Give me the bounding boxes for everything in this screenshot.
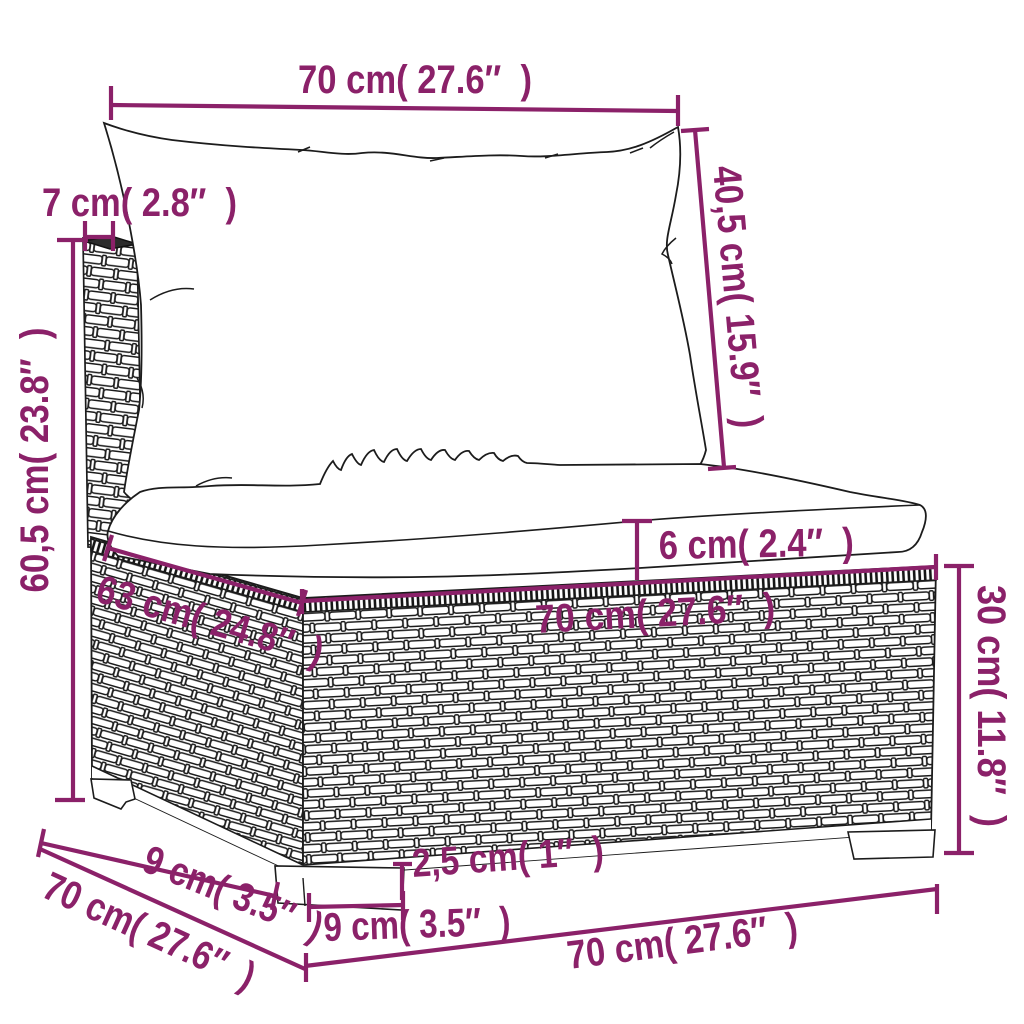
svg-text:9 cm( 3.5″ ): 9 cm( 3.5″ ) <box>323 899 511 949</box>
svg-text:6 cm( 2.4″ ): 6 cm( 2.4″ ) <box>658 521 854 568</box>
svg-text:60,5 cm( 23.8″ ): 60,5 cm( 23.8″ ) <box>13 328 57 593</box>
svg-text:30 cm( 11.8″ ): 30 cm( 11.8″ ) <box>969 585 1013 827</box>
svg-text:7 cm( 2.8″ ): 7 cm( 2.8″ ) <box>42 181 237 225</box>
svg-text:70 cm( 27.6″ ): 70 cm( 27.6″ ) <box>298 58 532 102</box>
